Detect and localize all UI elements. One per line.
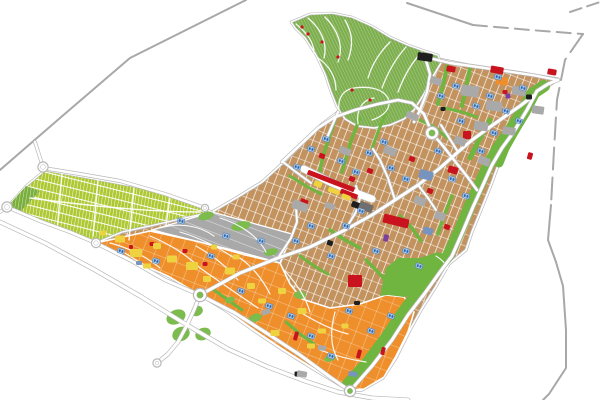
black-parcel (526, 95, 532, 100)
yellow-parcel (271, 330, 280, 336)
yellow-parcel (211, 245, 217, 250)
purple-parcel (506, 94, 511, 99)
red-parcel (503, 90, 508, 94)
gate-dot (306, 32, 309, 35)
yellow-parcel (225, 268, 235, 275)
red-parcel (348, 275, 362, 287)
roundabout-sw-gate (193, 288, 207, 302)
yellow-parcel (278, 288, 286, 294)
roundabout-farm-east (201, 204, 209, 212)
gate-dot (320, 40, 323, 43)
gate-dot (350, 88, 353, 91)
red-parcel (203, 262, 208, 266)
gray_district-parcel (532, 105, 545, 115)
gate-dot (368, 98, 371, 101)
yellow-parcel (143, 264, 151, 269)
roundabout-nw (37, 161, 48, 172)
yellow-parcel (186, 262, 198, 270)
yellow-parcel (258, 299, 266, 304)
red-parcel (129, 245, 133, 249)
yellow-parcel (318, 329, 326, 334)
yellow-parcel (307, 344, 315, 349)
roundabout-central (425, 126, 439, 140)
yellow-parcel (247, 283, 255, 289)
roundabout-south (344, 385, 356, 397)
yellow-parcel (100, 231, 106, 236)
roundabout-west (1, 201, 12, 212)
yellow-parcel (115, 236, 125, 243)
city-master-plan-map (0, 0, 600, 400)
roundabout-stub-end (152, 358, 161, 367)
master-plan-canvas (0, 0, 600, 400)
black-parcel (441, 107, 446, 111)
yellow-parcel (130, 249, 142, 257)
black-parcel (354, 301, 360, 305)
yellow-parcel (167, 256, 177, 263)
roundabout-farm-corner (91, 238, 101, 248)
gate-dot (336, 55, 339, 58)
gate-dot (300, 25, 303, 28)
red-parcel (463, 131, 471, 139)
red-parcel (183, 249, 188, 253)
yellow-parcel (298, 308, 307, 314)
yellow-parcel (233, 255, 240, 260)
steel-parcel (136, 261, 142, 265)
yellow-parcel (203, 276, 211, 282)
yellow-parcel (342, 324, 349, 329)
yellow-parcel (153, 243, 161, 249)
